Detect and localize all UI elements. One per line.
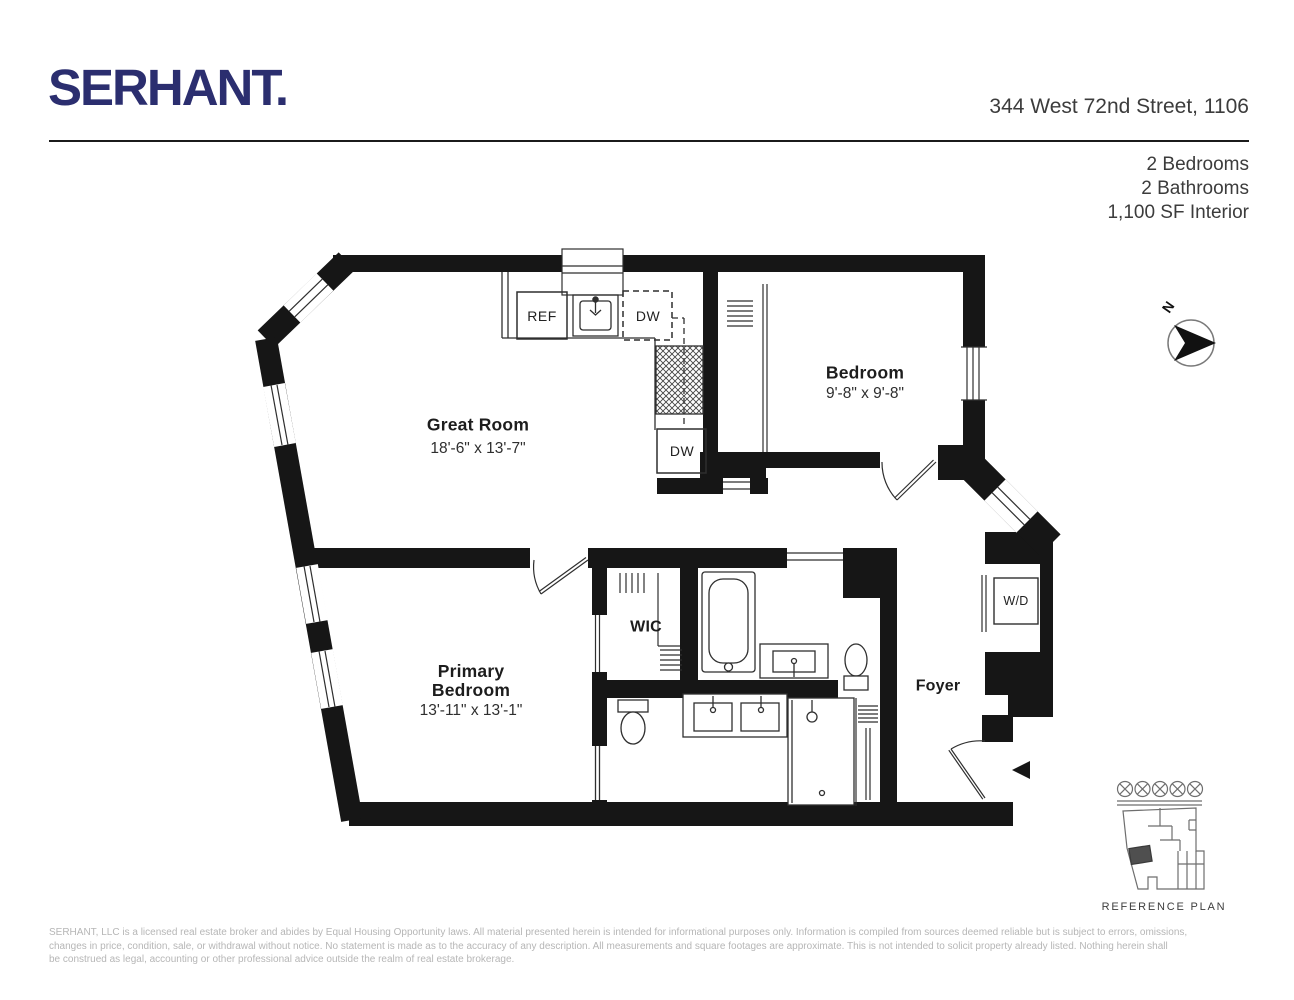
reference-plan-columns: [1118, 782, 1203, 797]
primary-bedroom-label: Primary Bedroom: [416, 662, 526, 700]
primary-bedroom-dims: 13'-11" x 13'-1": [420, 702, 523, 720]
bedroom-label: Bedroom: [826, 364, 904, 383]
dw-upper-label: DW: [636, 308, 660, 324]
dw-lower-label: DW: [670, 443, 694, 459]
wd-label: W/D: [1003, 594, 1028, 608]
north-arrow-icon: [1168, 320, 1216, 366]
bedroom-dims: 9'-8" x 9'-8": [826, 385, 904, 403]
legal-disclaimer: SERHANT, LLC is a licensed real estate b…: [49, 926, 1251, 967]
disclaimer-line-2: changes in price, condition, sale, or wi…: [49, 940, 1251, 954]
walls-angled: [266, 261, 1050, 820]
disclaimer-line-3: be construed as legal, accounting or oth…: [49, 953, 1251, 967]
great-room-label: Great Room: [427, 416, 529, 435]
great-room-dims: 18'-6" x 13'-7": [430, 440, 525, 458]
wic-label: WIC: [630, 618, 662, 637]
reference-plan-unit-highlight: [1129, 845, 1152, 864]
disclaimer-line-1: SERHANT, LLC is a licensed real estate b…: [49, 926, 1251, 940]
foyer-label: Foyer: [916, 677, 961, 696]
walls: [300, 255, 1053, 826]
entry-arrow-icon: [1012, 761, 1030, 779]
reference-plan-map: [1117, 782, 1204, 890]
floor-plan-sheet: SERHANT. 344 West 72nd Street, 1106 2 Be…: [0, 0, 1294, 1000]
floor-plan-drawing: [0, 0, 1294, 1000]
reference-plan-caption: REFERENCE PLAN: [1102, 901, 1227, 913]
ref-label: REF: [527, 308, 557, 324]
